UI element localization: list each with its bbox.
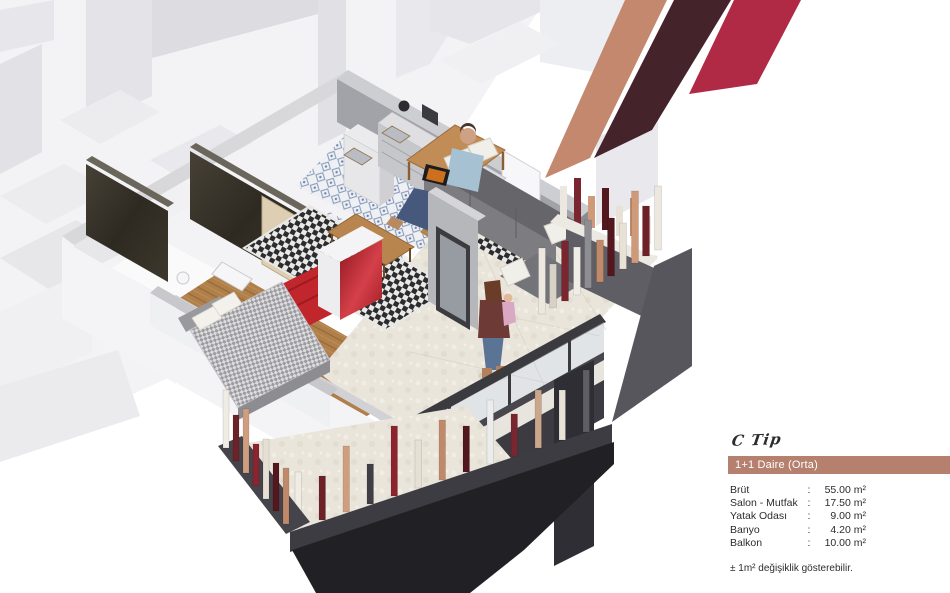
area-label: Balkon	[730, 537, 804, 550]
area-label: Salon - Mutfak	[730, 497, 804, 510]
area-label: Yatak Odası	[730, 510, 804, 523]
baby-head	[504, 294, 513, 303]
colon: :	[804, 497, 814, 510]
area-value: 10.00 m²	[814, 537, 866, 550]
baby-body	[502, 302, 516, 326]
brochure-page: C Tip 1+1 Daire (Orta) Brüt : 55.00 m² S…	[0, 0, 950, 593]
woman-hair	[484, 280, 502, 302]
sliding-door-glass	[440, 234, 466, 322]
area-row-brut: Brüt : 55.00 m²	[730, 484, 866, 497]
man-head	[460, 128, 476, 144]
tolerance-note: ± 1m² değişiklik gösterebilir.	[730, 563, 950, 574]
apartment-type-label: C Tip	[731, 430, 783, 450]
area-row-salon-mutfak: Salon - Mutfak : 17.50 m²	[730, 497, 866, 510]
colon: :	[804, 524, 814, 537]
area-value: 17.50 m²	[814, 497, 866, 510]
area-value: 9.00 m²	[814, 510, 866, 523]
kettle	[399, 101, 410, 112]
unit-title-bar: 1+1 Daire (Orta)	[728, 456, 950, 474]
area-value: 4.20 m²	[814, 524, 866, 537]
area-value: 55.00 m²	[814, 484, 866, 497]
toilet	[177, 272, 189, 284]
area-row-yatak-odasi: Yatak Odası : 9.00 m²	[730, 510, 866, 523]
area-label: Brüt	[730, 484, 804, 497]
area-label: Banyo	[730, 524, 804, 537]
colon: :	[804, 510, 814, 523]
unit-title: 1+1 Daire (Orta)	[735, 459, 818, 471]
colon: :	[804, 537, 814, 550]
area-row-banyo: Banyo : 4.20 m²	[730, 524, 866, 537]
info-panel: C Tip 1+1 Daire (Orta) Brüt : 55.00 m² S…	[728, 431, 950, 574]
area-table: Brüt : 55.00 m² Salon - Mutfak : 17.50 m…	[730, 484, 866, 550]
area-row-balkon: Balkon : 10.00 m²	[730, 537, 866, 550]
wardrobe-side	[318, 250, 340, 318]
colon: :	[804, 484, 814, 497]
